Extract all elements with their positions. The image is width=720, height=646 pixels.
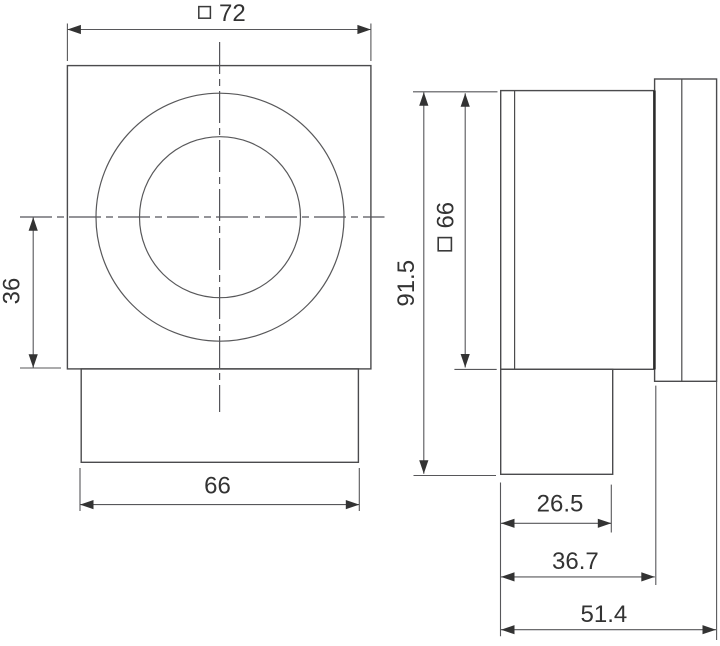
- svg-text:51.4: 51.4: [581, 601, 628, 628]
- svg-text:36: 36: [0, 278, 26, 305]
- svg-text:91.5: 91.5: [393, 260, 420, 307]
- svg-text:36.7: 36.7: [552, 548, 599, 575]
- svg-text:66: 66: [432, 202, 459, 229]
- svg-text:26.5: 26.5: [537, 490, 584, 517]
- svg-text:66: 66: [204, 473, 231, 500]
- svg-text:72: 72: [219, 0, 246, 27]
